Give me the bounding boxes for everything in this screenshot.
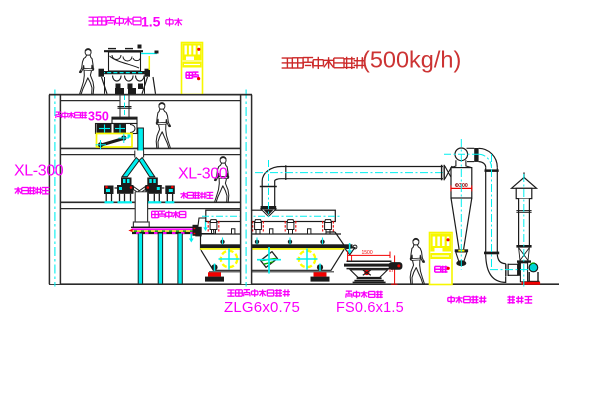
svg-text:FS0.6x1.5: FS0.6x1.5 [336, 300, 404, 316]
svg-text:(500kg/h): (500kg/h) [362, 47, 461, 73]
svg-text:XL-300: XL-300 [178, 166, 228, 183]
svg-text:ZLG6x0.75: ZLG6x0.75 [224, 299, 300, 316]
svg-text:XL-300: XL-300 [14, 163, 64, 180]
svg-text:1500: 1500 [362, 250, 373, 256]
svg-text:1.5: 1.5 [141, 14, 161, 30]
svg-text:350: 350 [88, 110, 109, 124]
